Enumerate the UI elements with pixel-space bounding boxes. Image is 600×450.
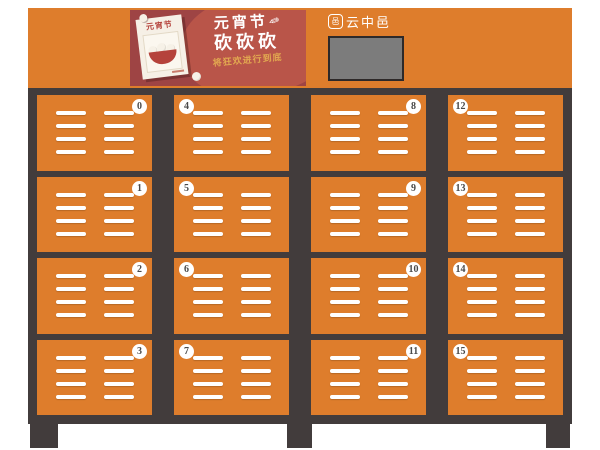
vent-slat — [104, 111, 134, 115]
locker-number-badge: 9 — [406, 181, 421, 196]
vent-slat — [515, 313, 545, 317]
vent-grid — [56, 193, 134, 236]
vent-slat — [378, 395, 408, 399]
vent-slat — [193, 150, 223, 154]
locker-door-11[interactable]: 11 — [311, 340, 426, 416]
vent-slat — [56, 300, 86, 304]
locker-number-badge: 6 — [179, 262, 194, 277]
locker-number-badge: 7 — [179, 344, 194, 359]
vent-slat — [467, 313, 497, 317]
vent-slat — [378, 369, 408, 373]
vent-slat — [515, 111, 545, 115]
vent-slat — [467, 356, 497, 360]
vent-slat — [515, 124, 545, 128]
vent-slat — [515, 232, 545, 236]
vent-slat — [515, 219, 545, 223]
vent-slat — [330, 300, 360, 304]
vent-grid — [330, 193, 408, 236]
vent-slat — [378, 313, 408, 317]
vent-slat — [467, 395, 497, 399]
vent-slat — [56, 111, 86, 115]
vent-slat — [467, 369, 497, 373]
vent-slat — [241, 274, 271, 278]
locker-number-badge: 13 — [453, 181, 468, 196]
vent-slat — [104, 137, 134, 141]
vent-slat — [104, 300, 134, 304]
vent-slat — [467, 300, 497, 304]
vent-slat — [330, 274, 360, 278]
locker-column-2: 4 5 6 7 — [174, 95, 289, 415]
locker-number-badge: 5 — [179, 181, 194, 196]
vent-slat — [330, 219, 360, 223]
tangyuan-bowl-icon — [148, 41, 179, 68]
vent-slat — [193, 382, 223, 386]
vent-slat — [330, 369, 360, 373]
calendar-date-mark — [172, 69, 184, 72]
vent-slat — [515, 369, 545, 373]
vent-slat — [56, 395, 86, 399]
locker-number-badge: 10 — [406, 262, 421, 277]
brand-logo-icon: 邑 — [328, 14, 343, 29]
vent-slat — [378, 232, 408, 236]
vent-slat — [467, 124, 497, 128]
vent-slat — [330, 382, 360, 386]
locker-door-0[interactable]: 0 — [37, 95, 152, 171]
vent-slat — [378, 137, 408, 141]
vent-slat — [467, 287, 497, 291]
poster-headline-2: 砍砍砍 — [190, 31, 305, 54]
vent-slat — [330, 193, 360, 197]
locker-door-3[interactable]: 3 — [37, 340, 152, 416]
vent-slat — [104, 274, 134, 278]
vent-slat — [378, 206, 408, 210]
locker-door-7[interactable]: 7 — [174, 340, 289, 416]
vent-grid — [56, 356, 134, 399]
vent-slat — [241, 382, 271, 386]
vent-slat — [104, 124, 134, 128]
vent-slat — [330, 150, 360, 154]
vent-slat — [378, 382, 408, 386]
promo-poster: 元宵节 元宵节✎ 砍砍砍 将狂欢进行到底 — [130, 10, 306, 86]
vent-slat — [467, 150, 497, 154]
locker-column-3: 8 9 10 11 — [311, 95, 426, 415]
locker-grid: 0 1 2 3 4 5 — [28, 88, 572, 424]
vent-slat — [193, 287, 223, 291]
vent-slat — [56, 124, 86, 128]
vent-grid — [467, 274, 545, 317]
vent-slat — [193, 313, 223, 317]
vent-slat — [467, 382, 497, 386]
locker-cabinet: 元宵节 元宵节✎ 砍砍砍 将狂欢进行到底 邑 云 — [28, 8, 572, 424]
vent-slat — [193, 274, 223, 278]
vent-slat — [515, 300, 545, 304]
vent-slat — [56, 369, 86, 373]
vent-slat — [515, 193, 545, 197]
calendar-illustration: 元宵节 — [136, 14, 189, 79]
vent-grid — [193, 193, 271, 236]
tangyuan-ball-icon — [192, 72, 201, 81]
locker-door-2[interactable]: 2 — [37, 258, 152, 334]
vent-slat — [193, 356, 223, 360]
vent-slat — [104, 369, 134, 373]
vent-slat — [56, 232, 86, 236]
vent-slat — [467, 193, 497, 197]
vent-slat — [241, 219, 271, 223]
locker-number-badge: 12 — [453, 99, 468, 114]
vent-grid — [467, 111, 545, 154]
locker-number-badge: 15 — [453, 344, 468, 359]
locker-number-badge: 0 — [132, 99, 147, 114]
vent-slat — [467, 137, 497, 141]
locker-number-badge: 11 — [406, 344, 421, 359]
vent-slat — [193, 232, 223, 236]
locker-door-10[interactable]: 10 — [311, 258, 426, 334]
vent-slat — [193, 124, 223, 128]
vent-grid — [193, 274, 271, 317]
locker-column-1: 0 1 2 3 — [37, 95, 152, 415]
brand: 邑 云中邑 — [328, 12, 391, 31]
vent-slat — [193, 111, 223, 115]
vent-slat — [56, 313, 86, 317]
vent-slat — [56, 193, 86, 197]
vent-slat — [241, 232, 271, 236]
vent-slat — [104, 232, 134, 236]
cabinet-header: 元宵节 元宵节✎ 砍砍砍 将狂欢进行到底 邑 云 — [28, 8, 572, 88]
locker-door-9[interactable]: 9 — [311, 177, 426, 253]
locker-number-badge: 1 — [132, 181, 147, 196]
vent-slat — [467, 206, 497, 210]
vent-slat — [515, 287, 545, 291]
locker-door-13[interactable]: 13 — [448, 177, 563, 253]
display-screen[interactable] — [328, 36, 404, 81]
vent-slat — [56, 137, 86, 141]
vent-slat — [56, 356, 86, 360]
vent-slat — [330, 137, 360, 141]
vent-slat — [378, 150, 408, 154]
vent-slat — [378, 287, 408, 291]
vent-slat — [104, 206, 134, 210]
vent-slat — [193, 193, 223, 197]
vent-slat — [330, 395, 360, 399]
vent-grid — [56, 111, 134, 154]
vent-slat — [378, 274, 408, 278]
vent-slat — [467, 219, 497, 223]
vent-slat — [241, 206, 271, 210]
cabinet-leg — [30, 424, 58, 448]
vent-slat — [330, 287, 360, 291]
locker-door-8[interactable]: 8 — [311, 95, 426, 171]
vent-slat — [56, 150, 86, 154]
vent-slat — [515, 382, 545, 386]
locker-column-4: 12 13 14 15 — [448, 95, 563, 415]
vent-slat — [193, 219, 223, 223]
vent-slat — [515, 206, 545, 210]
vent-slat — [515, 274, 545, 278]
vent-slat — [330, 313, 360, 317]
vent-slat — [378, 193, 408, 197]
brand-name: 云中邑 — [346, 12, 391, 31]
vent-slat — [104, 150, 134, 154]
vent-grid — [193, 111, 271, 154]
locker-door-12[interactable]: 12 — [448, 95, 563, 171]
vent-grid — [193, 356, 271, 399]
vent-slat — [193, 369, 223, 373]
locker-door-14[interactable]: 14 — [448, 258, 563, 334]
locker-door-1[interactable]: 1 — [37, 177, 152, 253]
vent-slat — [241, 356, 271, 360]
cabinet-leg — [546, 424, 570, 448]
vent-slat — [467, 232, 497, 236]
locker-door-6[interactable]: 6 — [174, 258, 289, 334]
vent-slat — [241, 193, 271, 197]
vent-slat — [104, 356, 134, 360]
vent-slat — [56, 274, 86, 278]
poster-text-block: 元宵节✎ 砍砍砍 将狂欢进行到底 — [189, 13, 305, 67]
vent-slat — [56, 382, 86, 386]
locker-number-badge: 4 — [179, 99, 194, 114]
vent-slat — [104, 382, 134, 386]
vent-slat — [241, 369, 271, 373]
brush-icon: ✎ — [266, 13, 282, 27]
vent-slat — [330, 124, 360, 128]
vent-slat — [193, 137, 223, 141]
vent-slat — [378, 111, 408, 115]
vent-grid — [330, 356, 408, 399]
locker-door-5[interactable]: 5 — [174, 177, 289, 253]
vent-slat — [104, 219, 134, 223]
vent-slat — [104, 287, 134, 291]
vent-slat — [193, 395, 223, 399]
vent-slat — [241, 124, 271, 128]
vent-slat — [467, 274, 497, 278]
locker-number-badge: 3 — [132, 344, 147, 359]
vent-slat — [56, 206, 86, 210]
vent-grid — [56, 274, 134, 317]
vent-slat — [330, 232, 360, 236]
locker-number-badge: 8 — [406, 99, 421, 114]
locker-door-15[interactable]: 15 — [448, 340, 563, 416]
vent-slat — [241, 300, 271, 304]
vent-slat — [241, 137, 271, 141]
vent-slat — [378, 124, 408, 128]
poster-headline-1: 元宵节✎ — [189, 13, 303, 33]
locker-number-badge: 14 — [453, 262, 468, 277]
vent-slat — [515, 150, 545, 154]
vent-slat — [241, 111, 271, 115]
cabinet-leg — [287, 424, 312, 448]
vent-slat — [378, 356, 408, 360]
vent-slat — [56, 219, 86, 223]
vent-slat — [515, 137, 545, 141]
vent-slat — [104, 395, 134, 399]
vent-slat — [241, 395, 271, 399]
vent-slat — [515, 395, 545, 399]
vent-slat — [378, 300, 408, 304]
vent-grid — [330, 274, 408, 317]
vent-slat — [330, 356, 360, 360]
vent-slat — [467, 111, 497, 115]
vent-slat — [104, 193, 134, 197]
vent-grid — [467, 193, 545, 236]
vent-slat — [241, 150, 271, 154]
vent-slat — [241, 287, 271, 291]
vent-slat — [193, 300, 223, 304]
calendar-picture-frame — [142, 31, 182, 73]
vent-slat — [378, 219, 408, 223]
vent-slat — [330, 111, 360, 115]
locker-number-badge: 2 — [132, 262, 147, 277]
vent-slat — [193, 206, 223, 210]
locker-door-4[interactable]: 4 — [174, 95, 289, 171]
vent-slat — [330, 206, 360, 210]
vent-slat — [241, 313, 271, 317]
vent-slat — [104, 313, 134, 317]
vent-slat — [515, 356, 545, 360]
vent-grid — [467, 356, 545, 399]
vent-grid — [330, 111, 408, 154]
vent-slat — [56, 287, 86, 291]
